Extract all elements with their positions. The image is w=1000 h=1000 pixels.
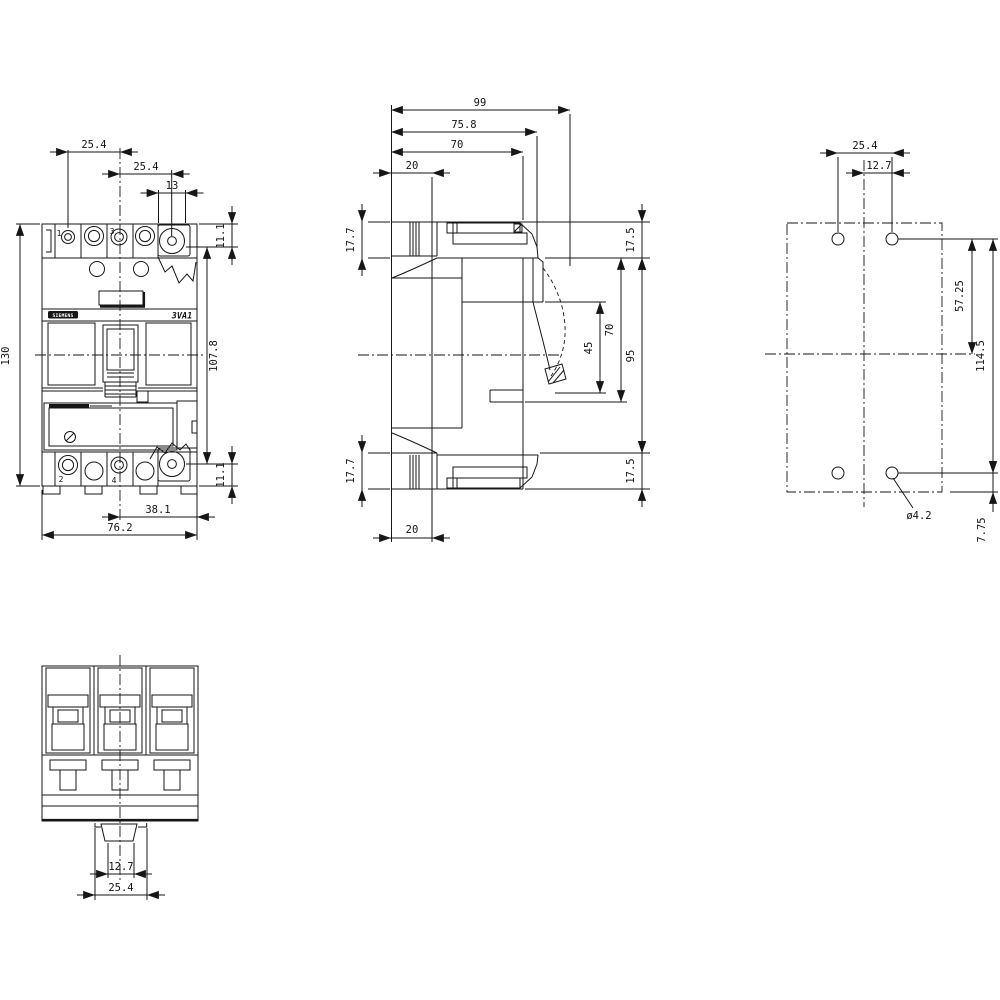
mounting-hole: [886, 233, 898, 245]
pole-number-3: 3: [110, 227, 115, 236]
dim-body-span: 95: [625, 350, 637, 363]
vent-circle: [90, 262, 105, 277]
dim-terminal-height-bottom: 17.7: [345, 458, 357, 483]
dim-overall-height: 130: [0, 347, 12, 366]
dim-hole-to-midline: 57.25: [954, 280, 966, 312]
rating-text-smudge: [49, 404, 89, 408]
on-button: [99, 291, 145, 306]
bottom-main-terminal: [150, 443, 190, 481]
vent-circle: [134, 262, 149, 277]
mounting-hole: [886, 467, 898, 479]
din-rail-latch: [95, 823, 147, 841]
dim-rail-recess-bottom: 20: [406, 524, 419, 536]
dim-terminal-height-top: 17.7: [345, 227, 357, 252]
dim-hole-to-center: 12.7: [866, 160, 891, 172]
front-view: 1 3 SIEMENS 3VA1: [35, 148, 205, 522]
side-view-dimensions: 99 75.8 70 20 17.7 17.7 17.5 95: [345, 97, 650, 538]
dim-terminal-span: 107.8: [208, 340, 220, 372]
dim-hole-span-vertical: 114.5: [975, 340, 987, 372]
dim-front-recess: 70: [604, 324, 616, 337]
dim-hole-pitch: 25.4: [852, 140, 877, 152]
mounting-plate-outline: [787, 223, 942, 492]
dim-center-to-edge: 38.1: [145, 504, 170, 516]
pole-number-1: 1: [57, 229, 62, 238]
bottom-view: 12.7 25.4: [42, 655, 198, 900]
mounting-hole: [832, 467, 844, 479]
rating-plate: [44, 401, 197, 450]
dim-rail-recess-top: 20: [406, 160, 419, 172]
front-view-dimensions: 25.4 25.4 13 11.1 107.8 11.1 130: [0, 139, 238, 540]
dim-pole-pitch-right: 25.4: [133, 161, 158, 173]
top-main-terminal: [158, 225, 196, 283]
pole-number-2: 2: [59, 475, 64, 484]
dim-depth-overall: 99: [474, 97, 487, 109]
dim-depth-body: 70: [451, 139, 464, 151]
dimensional-drawing: 1 3 SIEMENS 3VA1: [0, 0, 1000, 1000]
dim-depth-with-cover: 75.8: [451, 119, 476, 131]
dim-latch-pitch: 25.4: [108, 882, 133, 894]
dim-overall-width: 76.2: [107, 522, 132, 534]
mounting-hole: [832, 233, 844, 245]
dim-edge-to-step-bottom: 17.5: [625, 458, 637, 483]
dim-latch-width: 12.7: [108, 861, 133, 873]
side-toggle-tip: [545, 364, 566, 384]
dim-hole-to-bottom: 7.75: [976, 517, 988, 542]
side-view: [358, 105, 566, 542]
model-label: 3VA1: [171, 312, 192, 322]
dim-hole-diameter: ø4.2: [906, 510, 931, 522]
dim-handle-recess: 45: [583, 342, 595, 355]
drilling-plan: 25.4 12.7 57.25 114.5 7.75 ø4.2: [765, 140, 998, 543]
bottom-terminal-screws: [59, 456, 155, 481]
test-button: [137, 391, 148, 402]
dim-terminal-width: 13: [166, 180, 179, 192]
dim-terminal-offset-top: 11.1: [215, 223, 227, 248]
dim-pole-pitch-left: 25.4: [81, 139, 106, 151]
dim-terminal-offset-bottom: 11.1: [215, 462, 227, 487]
top-terminal-screws: [62, 227, 155, 246]
dim-edge-to-step-top: 17.5: [625, 227, 637, 252]
pole-module: [46, 668, 90, 753]
pole-number-4: 4: [112, 476, 117, 485]
pole-module: [150, 668, 194, 753]
toggle-area: [48, 323, 191, 397]
hole-diameter-leader: [893, 478, 913, 508]
toggle-travel-arc: [543, 268, 565, 376]
brand-label: SIEMENS: [52, 313, 73, 319]
